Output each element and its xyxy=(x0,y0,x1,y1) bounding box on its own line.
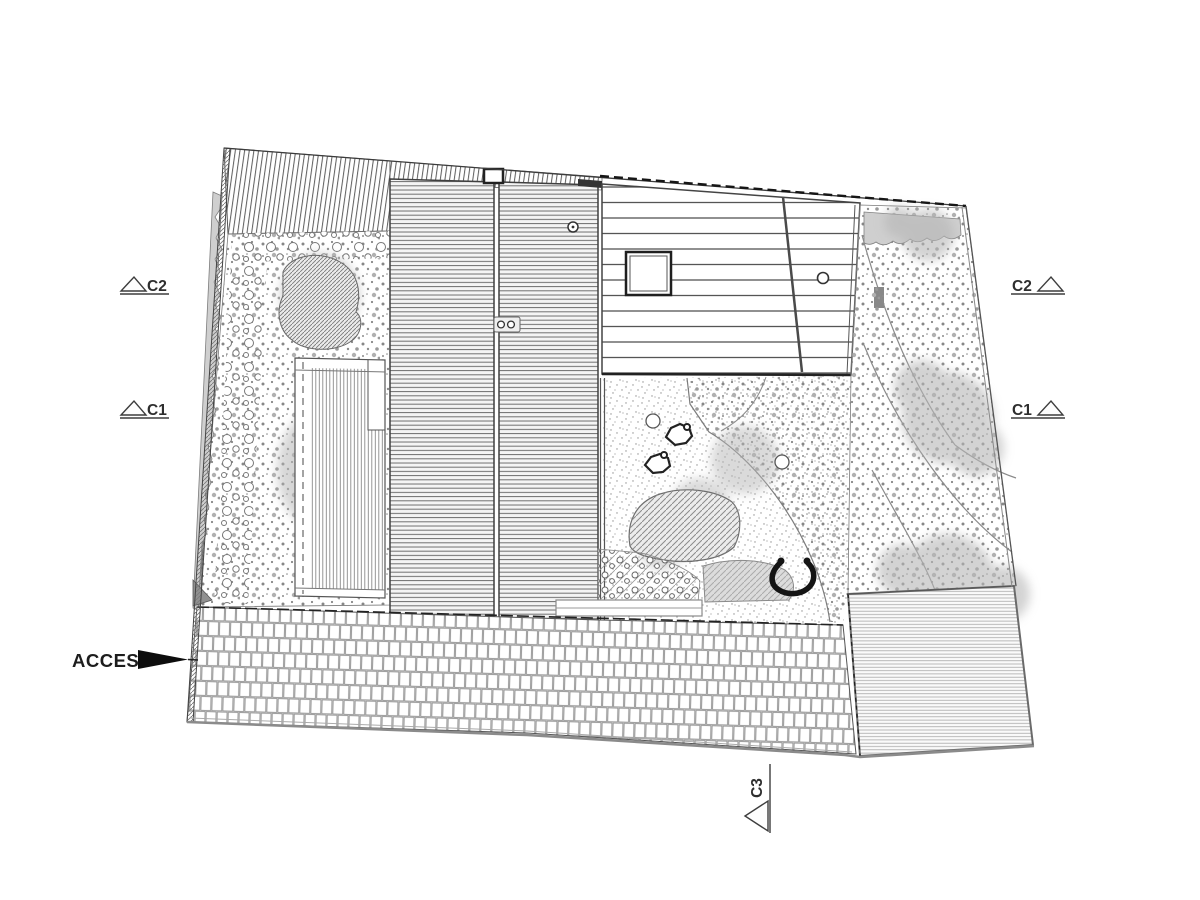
section-triangle-icon xyxy=(1038,401,1063,415)
bench-step xyxy=(556,600,702,616)
section-marker-c1-left: C1 xyxy=(120,401,169,419)
section-marker-c2-right: C2 xyxy=(1011,277,1065,295)
site-plan: ACCES C2 C1 C2 C1 C3 xyxy=(0,0,1200,900)
roof-drain xyxy=(818,273,829,284)
section-label-c2-left: C2 xyxy=(147,278,167,295)
sloped-roof xyxy=(602,184,884,375)
section-label-c2-right: C2 xyxy=(1012,278,1032,295)
section-marker-c3-bottom: C3 xyxy=(745,764,770,833)
section-marker-c2-left: C2 xyxy=(120,277,169,295)
section-triangle-icon xyxy=(1038,277,1063,291)
section-label-c1-right: C1 xyxy=(1012,402,1032,419)
access-label: ACCES xyxy=(72,650,139,671)
access-arrow-icon xyxy=(138,650,188,669)
play-circle-1 xyxy=(646,414,660,428)
section-triangle-icon xyxy=(121,401,146,415)
southeast-deck xyxy=(848,586,1033,756)
roof-access-hatch xyxy=(494,317,520,332)
play-circle-2 xyxy=(775,455,789,469)
section-marker-c1-right: C1 xyxy=(1011,401,1065,419)
section-label-c3-bottom: C3 xyxy=(749,778,766,798)
section-triangle-icon xyxy=(121,277,146,291)
timber-deck-small xyxy=(295,358,385,598)
section-triangle-icon xyxy=(745,801,768,831)
rooflight-chimney xyxy=(484,169,503,183)
east-garden xyxy=(848,205,1030,630)
skylight xyxy=(626,252,671,295)
access-marker: ACCES xyxy=(72,650,198,671)
courtyard xyxy=(556,376,851,625)
plan-drawing: ACCES C2 C1 C2 C1 C3 xyxy=(0,0,1200,900)
section-label-c1-left: C1 xyxy=(147,402,167,419)
